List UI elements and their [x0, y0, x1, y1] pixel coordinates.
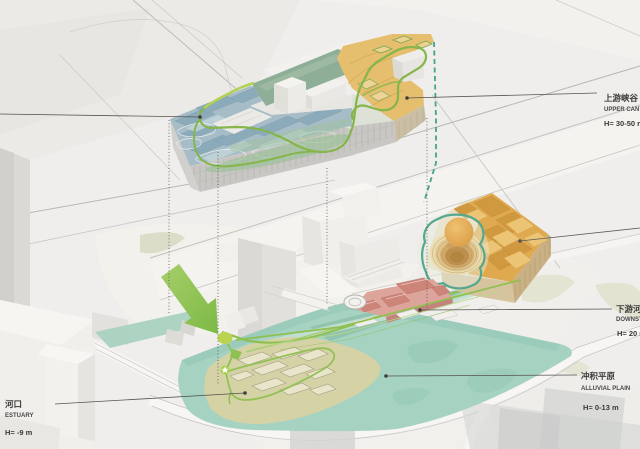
svg-text:H= 20 m: H= 20 m [617, 329, 640, 338]
svg-text:冲积平原: 冲积平原 [581, 371, 616, 381]
svg-text:H= 30-50 m: H= 30-50 m [604, 119, 640, 128]
svg-text:DOWNSTREAM: DOWNSTREAM [616, 317, 640, 323]
svg-text:河口: 河口 [5, 399, 22, 409]
svg-text:ALLUVIAL PLAIN: ALLUVIAL PLAIN [581, 386, 630, 392]
svg-text:上游峡谷: 上游峡谷 [604, 93, 639, 103]
svg-text:下游河谷: 下游河谷 [616, 304, 640, 314]
svg-text:ESTUARY: ESTUARY [5, 413, 33, 419]
svg-text:H= -9 m: H= -9 m [5, 428, 33, 437]
svg-text:H= 0-13 m: H= 0-13 m [583, 403, 619, 412]
svg-text:UPPER CANYON: UPPER CANYON [604, 107, 640, 113]
